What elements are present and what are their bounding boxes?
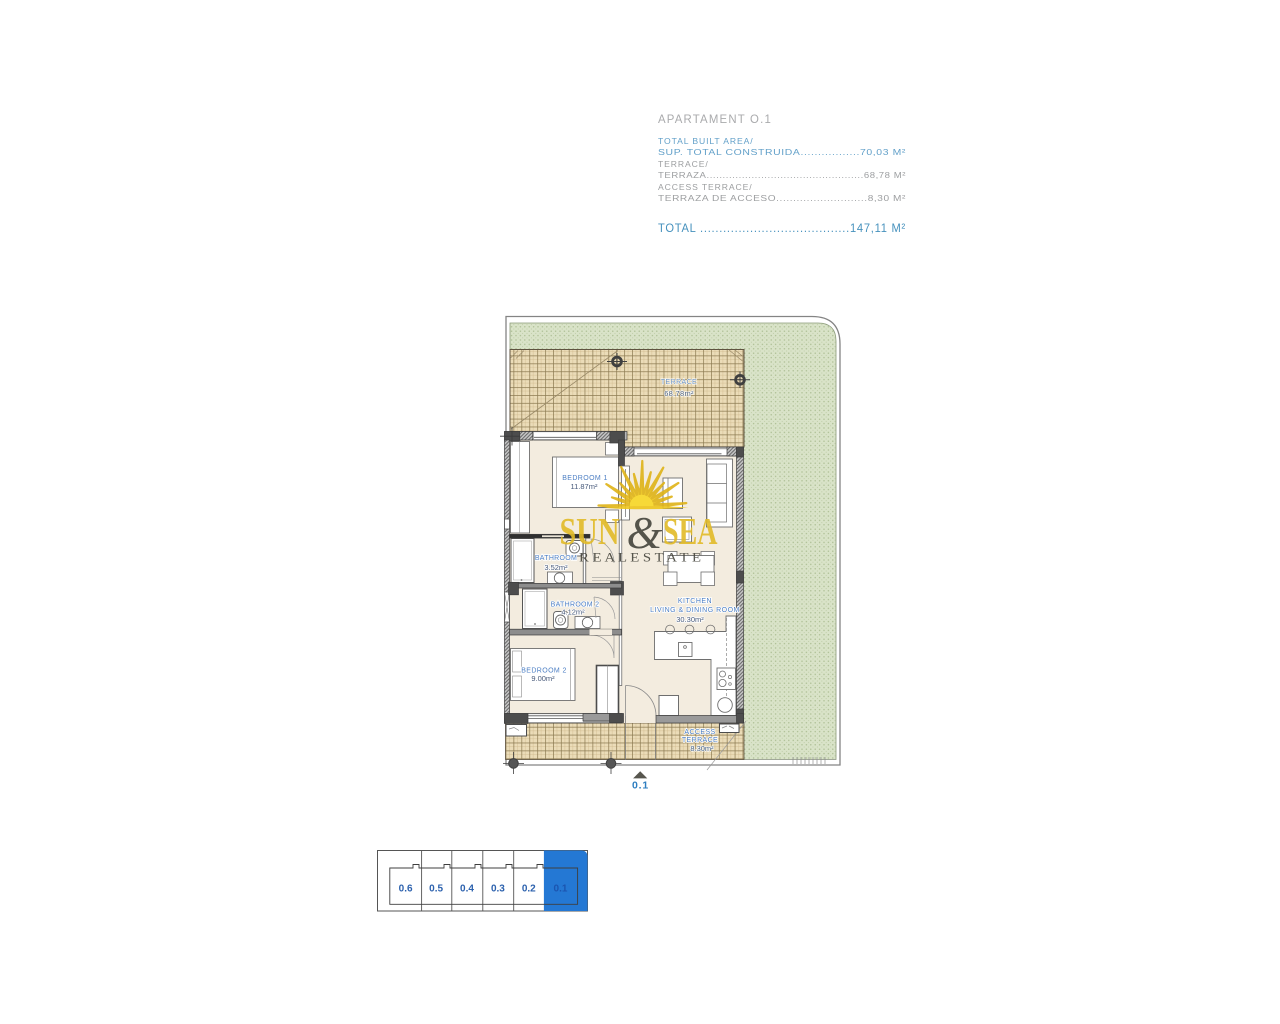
svg-text:R E A L E S T A T E: R E A L E S T A T E xyxy=(579,551,701,565)
svg-text:TERRAZA.......................: TERRAZA.................................… xyxy=(658,170,906,180)
svg-text:SUP. TOTAL CONSTRUIDA.........: SUP. TOTAL CONSTRUIDA.................70… xyxy=(658,147,906,157)
svg-text:0.6: 0.6 xyxy=(399,884,413,895)
svg-text:0.3: 0.3 xyxy=(491,884,505,895)
svg-text:ACCESS TERRACE/: ACCESS TERRACE/ xyxy=(658,182,753,192)
svg-text:11.87m²: 11.87m² xyxy=(571,482,598,491)
svg-text:KITCHEN: KITCHEN xyxy=(678,598,712,605)
svg-text:ACCESS: ACCESS xyxy=(684,729,715,736)
svg-text:0.5: 0.5 xyxy=(429,884,443,895)
svg-text:8.30m²: 8.30m² xyxy=(690,744,714,753)
svg-text:TERRACE/: TERRACE/ xyxy=(658,159,709,169)
svg-text:0.4: 0.4 xyxy=(460,884,474,895)
svg-text:TERRACE: TERRACE xyxy=(682,737,718,744)
svg-text:BEDROOM 1: BEDROOM 1 xyxy=(562,475,608,482)
svg-text:LIVING & DINING ROOM: LIVING & DINING ROOM xyxy=(650,607,740,614)
svg-text:9.00m²: 9.00m² xyxy=(531,674,555,683)
svg-text:0.2: 0.2 xyxy=(522,884,536,895)
svg-text:APARTAMENT O.1: APARTAMENT O.1 xyxy=(658,114,772,126)
svg-text:30.30m²: 30.30m² xyxy=(676,615,704,624)
svg-text:0.1: 0.1 xyxy=(632,780,649,792)
svg-text:3.52m²: 3.52m² xyxy=(544,563,568,572)
svg-text:TERRAZA DE ACCESO.............: TERRAZA DE ACCESO.......................… xyxy=(658,193,906,203)
svg-text:SUN: SUN xyxy=(560,511,620,553)
svg-text:TOTAL BUILT AREA/: TOTAL BUILT AREA/ xyxy=(658,136,754,146)
svg-text:SEA: SEA xyxy=(663,511,718,553)
svg-text:TERRACE: TERRACE xyxy=(661,379,697,386)
svg-text:BATHROOM: BATHROOM xyxy=(535,555,577,562)
svg-text:68.78m²: 68.78m² xyxy=(664,389,694,398)
svg-text:TOTAL ........................: TOTAL ..................................… xyxy=(658,221,906,235)
svg-text:0.1: 0.1 xyxy=(554,884,568,895)
svg-text:4.12m²: 4.12m² xyxy=(561,608,585,617)
